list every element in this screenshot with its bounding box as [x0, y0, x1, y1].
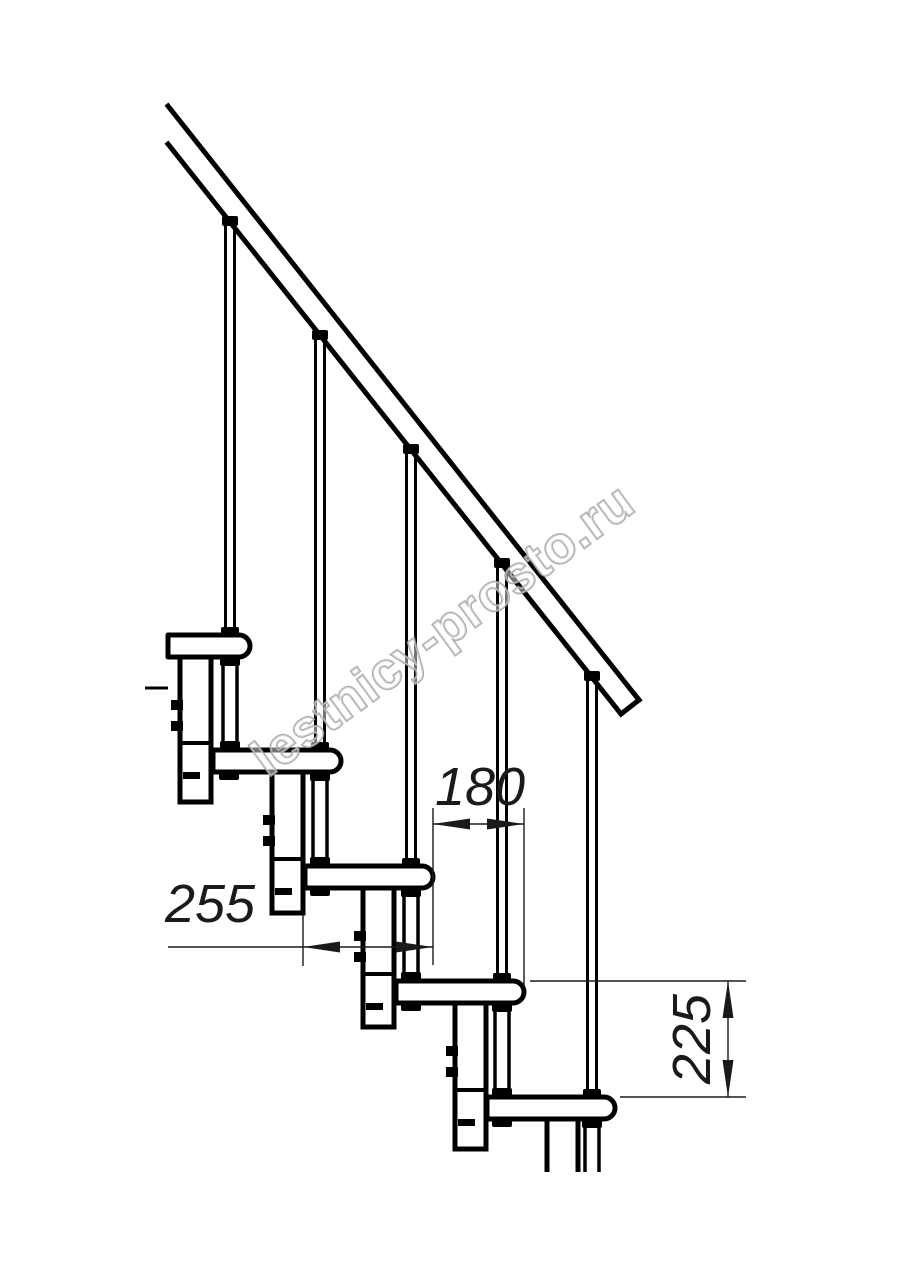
tread: [396, 981, 524, 1003]
dimension-255-label: 255: [164, 874, 256, 934]
baluster: [588, 678, 597, 1097]
column: [223, 657, 237, 750]
handrail-top-edge: [168, 106, 639, 700]
dimension-180-label: 180: [435, 757, 525, 817]
module-box: [455, 1003, 486, 1149]
arrowhead: [396, 942, 433, 953]
dimension-225-label: 225: [662, 993, 722, 1085]
arrowhead: [723, 1060, 734, 1097]
dimension-180: [433, 808, 524, 986]
arrowhead: [433, 819, 470, 830]
tread: [168, 635, 250, 657]
column: [313, 772, 327, 866]
module-box: [180, 657, 211, 802]
tread: [305, 866, 433, 888]
column: [404, 888, 418, 981]
handrail-end-cap: [621, 700, 639, 714]
tread: [487, 1097, 615, 1119]
drawing-canvas: 180 255 225 lestnicy-prosto.ru: [0, 0, 914, 1280]
arrowhead: [303, 942, 340, 953]
column: [495, 1003, 509, 1097]
staircase-technical-drawing: 180 255 225 lestnicy-prosto.ru: [0, 0, 914, 1280]
baluster: [226, 224, 235, 635]
arrowhead: [723, 981, 734, 1018]
